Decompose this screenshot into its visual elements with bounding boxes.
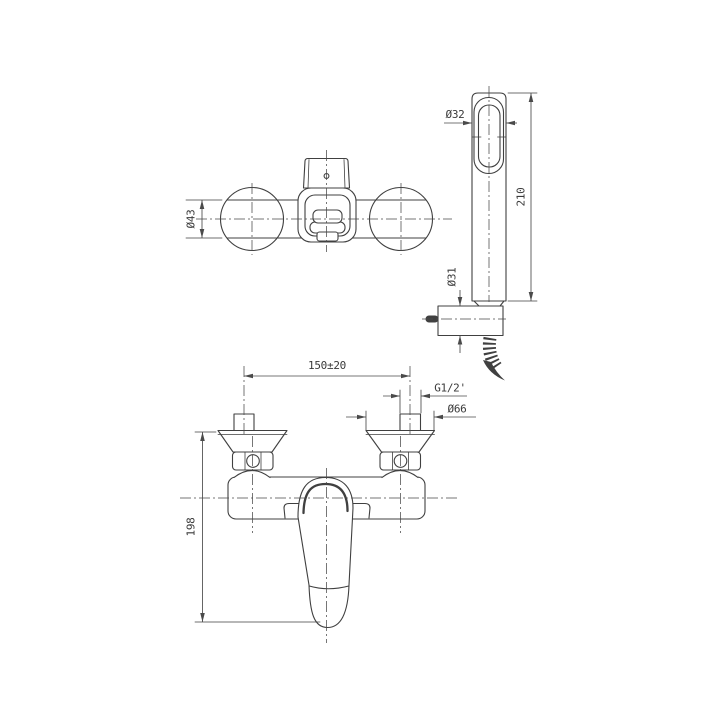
dim-shower-length: 210 [508, 93, 537, 301]
top-view-mixer: Ø43 [185, 150, 453, 255]
dim-label-thread-size: G1/2' [434, 382, 466, 395]
lever-handle-front [298, 478, 353, 628]
front-view-mixer: 150±20 G1/2' Ø66 198 [180, 359, 476, 643]
wall-bracket [438, 306, 503, 336]
dim-inlet-spacing: 150±20 [244, 359, 410, 376]
technical-drawing-canvas: Ø43 Ø32 [0, 0, 720, 720]
dim-label-overall-height: 198 [185, 518, 198, 537]
hand-shower: Ø32 210 Ø31 [422, 86, 537, 381]
dim-label-shower-length: 210 [515, 188, 528, 207]
shower-mixer-technical-drawing: Ø43 Ø32 [0, 0, 720, 720]
shower-hose [483, 338, 505, 381]
dim-label-head-diameter: Ø32 [446, 108, 465, 121]
dim-label-body-diameter: Ø43 [185, 210, 198, 229]
dim-label-inlet-spacing: 150±20 [308, 359, 346, 372]
dim-label-flange-diameter: Ø66 [448, 403, 467, 416]
dim-label-bracket-diameter: Ø31 [446, 268, 459, 287]
